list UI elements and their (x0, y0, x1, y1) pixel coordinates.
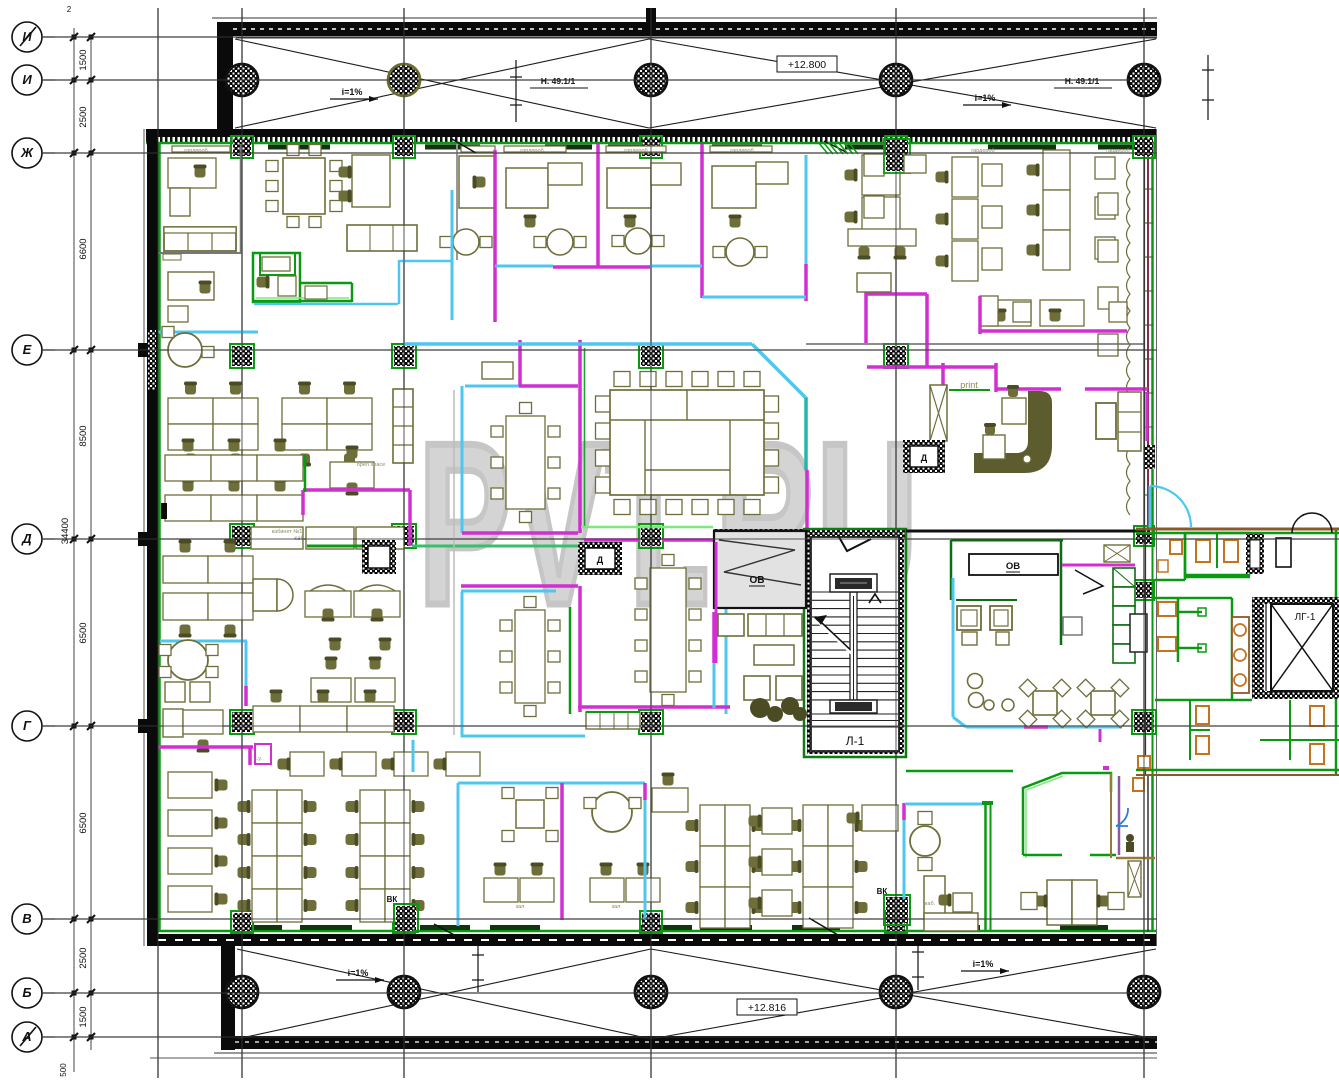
svg-text:i=1%: i=1% (342, 87, 363, 97)
svg-text:Д: Д (597, 555, 604, 565)
svg-text:i=1%: i=1% (975, 93, 996, 103)
svg-text:Д: Д (921, 453, 928, 463)
svg-text:Е: Е (23, 342, 32, 357)
svg-text:8500: 8500 (78, 425, 89, 446)
svg-text:34400: 34400 (60, 518, 71, 544)
svg-text:с.у.: с.у. (254, 756, 262, 762)
svg-text:кабинет №1: кабинет №1 (272, 529, 303, 535)
svg-text:зал: зал (516, 904, 525, 910)
svg-text:i=1%: i=1% (973, 959, 994, 969)
svg-text:И: И (22, 72, 32, 87)
svg-text:2500: 2500 (78, 106, 89, 127)
svg-text:6500: 6500 (78, 812, 89, 833)
svg-text:Л-1: Л-1 (846, 734, 865, 748)
svg-text:В: В (22, 911, 31, 926)
svg-text:6600: 6600 (78, 238, 89, 259)
svg-text:Н. 49.1/1: Н. 49.1/1 (541, 76, 576, 86)
svg-text:+12.800: +12.800 (788, 59, 826, 71)
svg-text:print: print (960, 380, 978, 390)
svg-text:ОВ: ОВ (750, 575, 765, 586)
svg-text:Б: Б (22, 985, 31, 1000)
svg-text:6500: 6500 (78, 622, 89, 643)
svg-text:+12.816: +12.816 (748, 1002, 786, 1014)
svg-text:ВК: ВК (877, 887, 888, 896)
svg-text:зал: зал (612, 904, 621, 910)
svg-text:Ж: Ж (20, 145, 34, 160)
svg-text:ВК: ВК (387, 895, 398, 904)
svg-text:1500: 1500 (78, 1006, 89, 1027)
svg-text:i=1%: i=1% (348, 968, 369, 978)
svg-text:Д: Д (21, 531, 32, 546)
svg-text:500: 500 (59, 1063, 68, 1077)
svg-text:каб.: каб. (925, 901, 936, 907)
svg-text:open space: open space (357, 462, 385, 468)
svg-text:2: 2 (67, 5, 72, 14)
svg-text:2500: 2500 (78, 947, 89, 968)
svg-text:Н. 49.1/1: Н. 49.1/1 (1065, 76, 1100, 86)
svg-text:1500: 1500 (78, 49, 89, 70)
svg-text:ОВ: ОВ (1006, 561, 1020, 572)
svg-text:Г: Г (23, 718, 32, 733)
svg-text:ЛГ-1: ЛГ-1 (1295, 612, 1316, 623)
